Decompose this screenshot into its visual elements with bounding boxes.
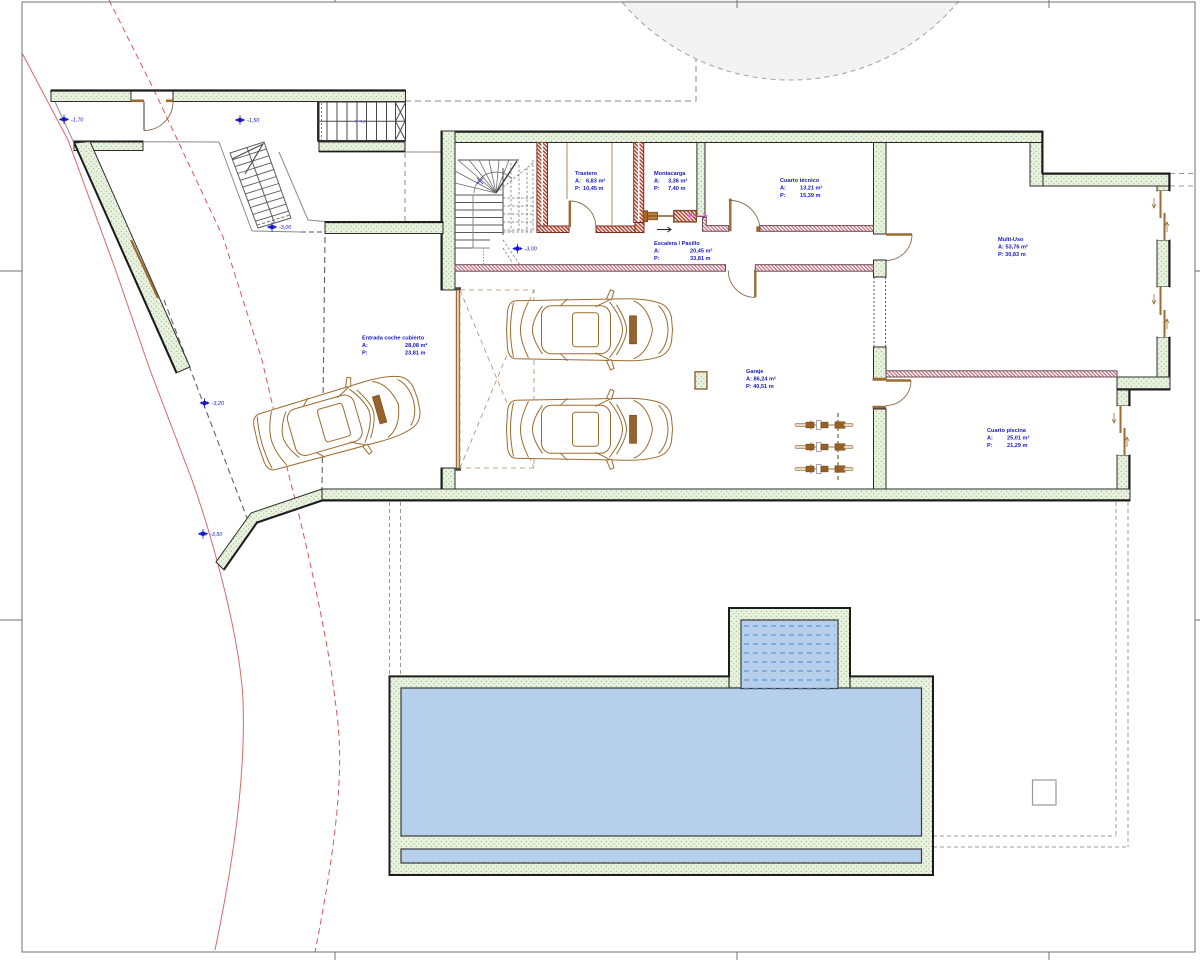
- svg-text:Cuarto piscina: Cuarto piscina: [987, 428, 1027, 434]
- svg-text:23,81 m: 23,81 m: [405, 351, 426, 357]
- svg-text:A:: A:: [987, 436, 993, 442]
- svg-text:Montacarga: Montacarga: [654, 171, 686, 177]
- svg-text:A:: A:: [654, 179, 660, 185]
- svg-text:7,40 m: 7,40 m: [668, 186, 685, 192]
- svg-text:A:: A:: [654, 249, 660, 255]
- svg-text:13,21 m²: 13,21 m²: [800, 185, 823, 192]
- svg-text:A:: A:: [362, 343, 368, 349]
- svg-text:P: 40,51 m: P: 40,51 m: [746, 384, 774, 390]
- svg-text:Multi-Uso: Multi-Uso: [998, 237, 1024, 243]
- svg-text:-3,20: -3,20: [212, 401, 224, 407]
- svg-text:P:: P:: [654, 256, 660, 262]
- svg-text:P: 30,83 m: P: 30,83 m: [998, 252, 1026, 258]
- svg-text:P:: P:: [362, 351, 368, 357]
- svg-text:Escalera / Pasillo: Escalera / Pasillo: [654, 241, 700, 247]
- svg-text:-1,70: -1,70: [71, 118, 83, 124]
- svg-text:15,39 m: 15,39 m: [800, 193, 821, 199]
- svg-text:6,83 m²: 6,83 m²: [586, 178, 605, 185]
- svg-text:10,45 m: 10,45 m: [583, 186, 604, 192]
- svg-text:28,08 m²: 28,08 m²: [405, 342, 428, 349]
- svg-text:-3,00: -3,00: [525, 247, 537, 253]
- svg-text:Trastero: Trastero: [575, 171, 598, 177]
- svg-text:A:: A:: [780, 186, 786, 192]
- svg-text:P:: P:: [654, 186, 660, 192]
- svg-text:Entrada coche cubierto: Entrada coche cubierto: [362, 336, 425, 342]
- svg-text:20,45 m²: 20,45 m²: [690, 248, 713, 255]
- svg-text:B+0,3: B+0,3: [355, 119, 367, 124]
- svg-text:A: 86,24 m²: A: 86,24 m²: [746, 376, 776, 383]
- svg-text:3,36 m²: 3,36 m²: [668, 178, 687, 185]
- svg-text:P:: P:: [780, 193, 786, 199]
- svg-text:-3,50: -3,50: [210, 532, 222, 538]
- svg-text:P:: P:: [987, 443, 993, 449]
- svg-text:25,01 m²: 25,01 m²: [1007, 435, 1030, 442]
- svg-text:A:: A:: [575, 179, 581, 185]
- svg-text:Garaje: Garaje: [746, 369, 763, 375]
- svg-text:P:: P:: [575, 186, 581, 192]
- svg-text:Cuarto técnico: Cuarto técnico: [780, 178, 820, 184]
- svg-text:A: 53,76 m²: A: 53,76 m²: [998, 244, 1028, 251]
- svg-text:-1,50: -1,50: [247, 118, 259, 124]
- svg-text:21,29 m: 21,29 m: [1007, 443, 1028, 449]
- svg-text:-3,00: -3,00: [279, 225, 291, 231]
- svg-text:33,81 m: 33,81 m: [690, 256, 711, 262]
